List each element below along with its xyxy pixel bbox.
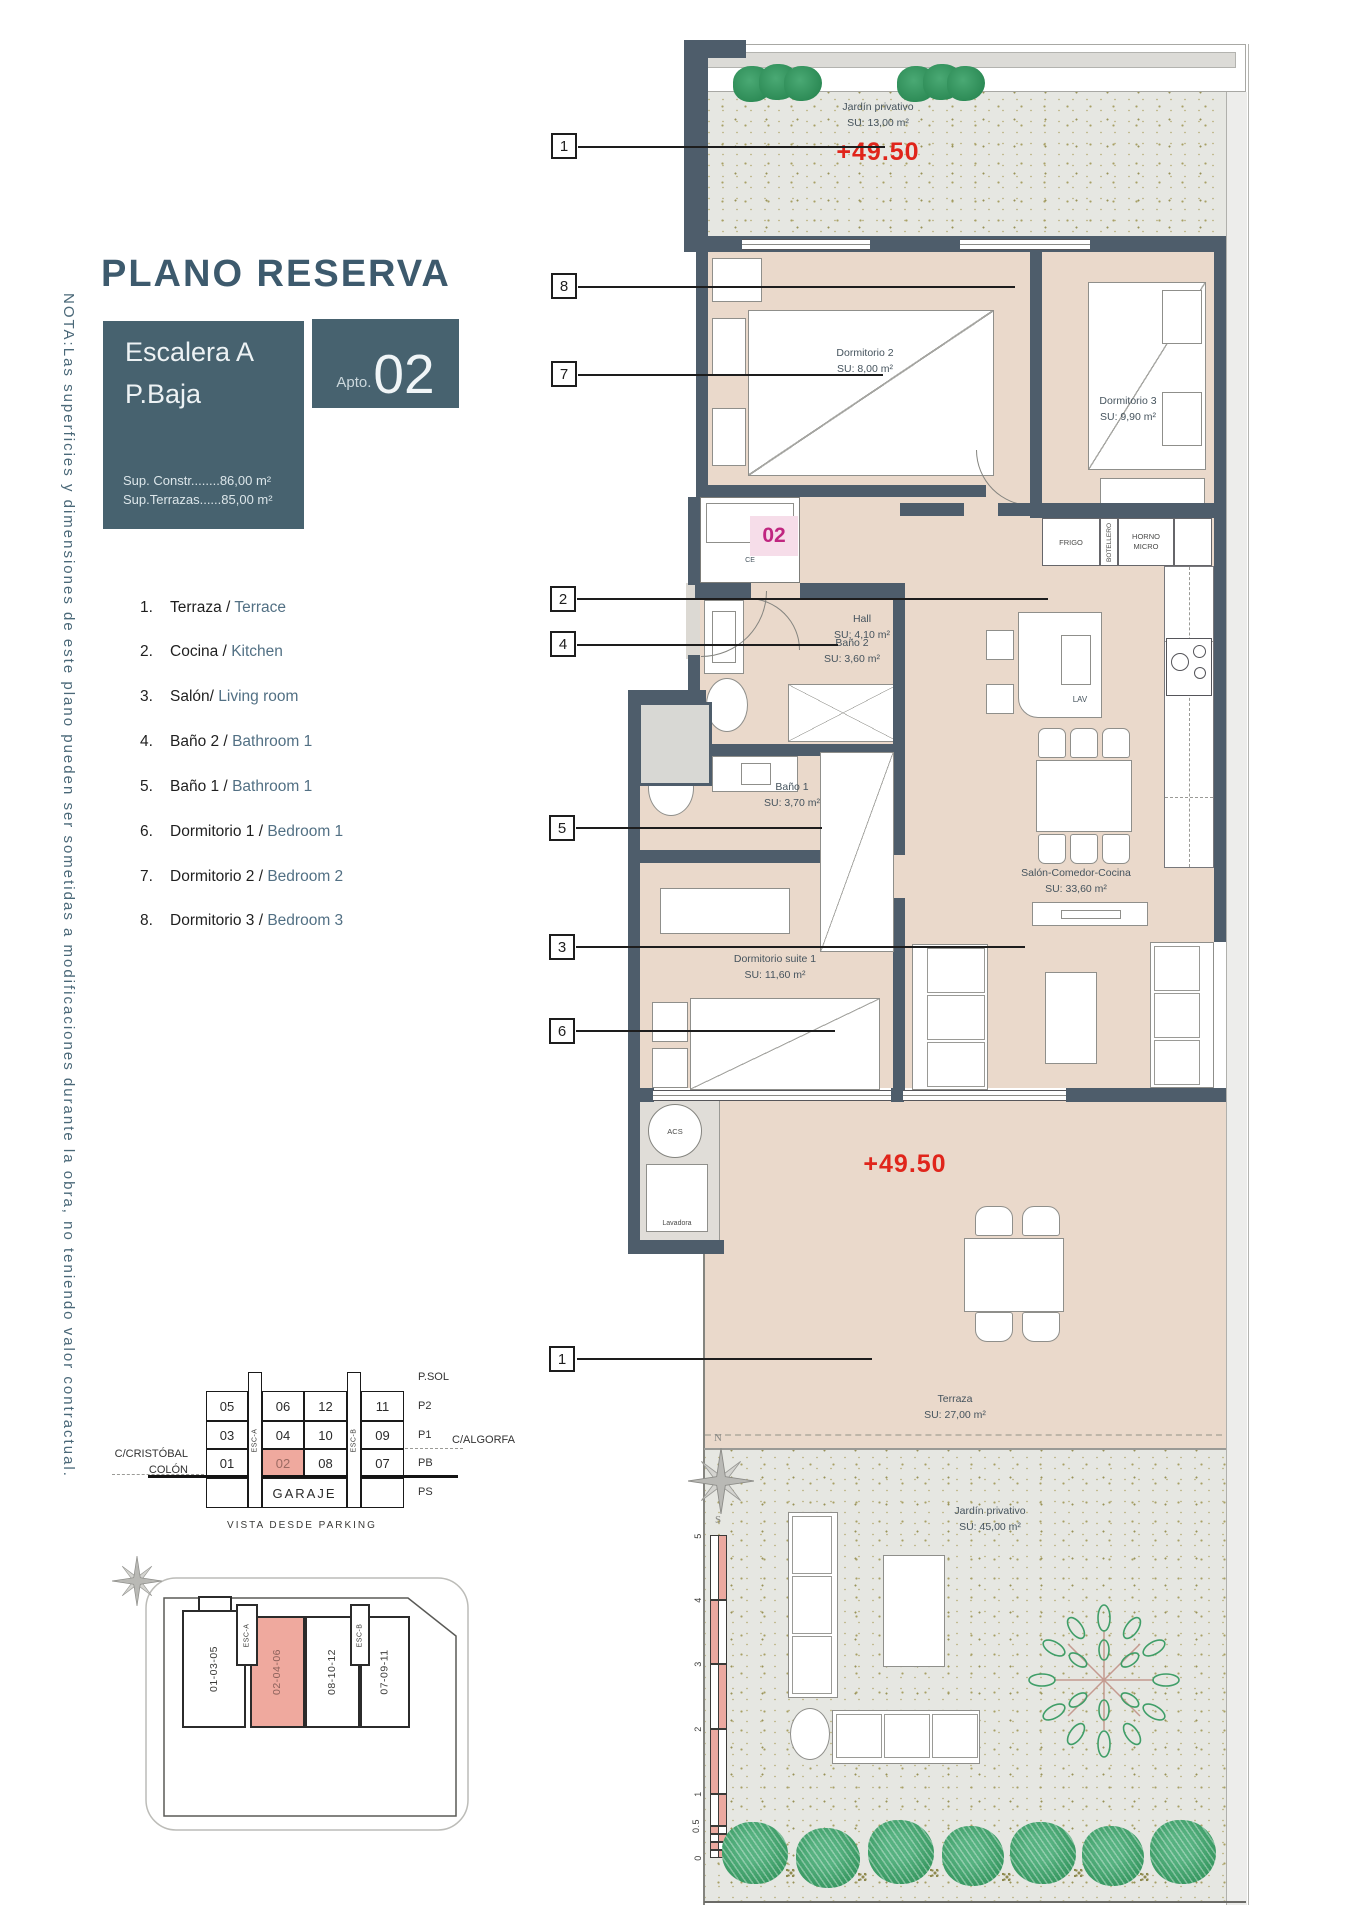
grid-esc-b: ESC-B [347, 1372, 361, 1508]
legend-en: Bathroom 1 [232, 778, 312, 795]
dorm3-name: Dormitorio 3 [1099, 394, 1156, 410]
legend-es: Cocina / [170, 643, 227, 660]
apto-number: 02 [373, 351, 434, 398]
scale-label-4: 4 [690, 1594, 706, 1606]
callout-2: 2 [550, 586, 576, 612]
hall-name: Hall [853, 612, 871, 628]
wall-hall-bano2-a [695, 583, 751, 598]
burner-icon [1194, 667, 1206, 679]
callout-1-bottom: 1 [549, 1346, 575, 1372]
site-block-jog [198, 1596, 232, 1612]
shaft-box [638, 702, 712, 786]
garden-bottom-name: Jardín privativo [954, 1504, 1025, 1520]
frigo-label: FRIGO [1059, 538, 1083, 547]
leader-1-bottom [577, 1358, 872, 1360]
grid-cell-garaje: GARAJE [262, 1478, 347, 1508]
burner-icon [1193, 645, 1206, 658]
wall-utility-left [628, 1095, 640, 1254]
scale-segment [718, 1664, 727, 1729]
level-label-p2: P2 [418, 1400, 431, 1412]
sup-terrazas: Sup.Terrazas......85,00 m² [123, 492, 273, 507]
legend-es: Dormitorio 2 / [170, 868, 263, 885]
bano2-name: Baño 2 [835, 636, 868, 652]
dining-table [1036, 760, 1132, 832]
sofa-cushion [1154, 993, 1200, 1038]
scale-segment [718, 1826, 727, 1834]
counter-dash [1189, 567, 1190, 867]
grid-cell-01: 01 [206, 1449, 248, 1478]
legend-num: 5. [140, 778, 170, 796]
callout-label: 8 [560, 278, 568, 295]
legend-num: 3. [140, 688, 170, 706]
sup-constr: Sup. Constr........86,00 m² [123, 473, 271, 488]
street-dash-left [112, 1474, 204, 1475]
legend-item-dorm3: 8.Dormitorio 3 / Bedroom 3 [140, 912, 343, 930]
legend-es: Terraza / [170, 599, 230, 616]
legend-item-dorm1: 6.Dormitorio 1 / Bedroom 1 [140, 823, 343, 841]
window-bottom-1 [653, 1090, 891, 1101]
acs-circle: ACS [648, 1104, 702, 1158]
lav-label: LAV [1073, 694, 1088, 706]
leader-8 [578, 286, 1015, 288]
tv-unit [1061, 910, 1121, 919]
leader-4 [577, 644, 838, 646]
bush-icon [1150, 1820, 1216, 1884]
callout-3: 3 [549, 934, 575, 960]
garden-top-name: Jardín privativo [842, 100, 913, 116]
legend-item-terraza: 1.Terraza / Terrace [140, 599, 286, 617]
coffee-table [1045, 972, 1097, 1064]
leader-6 [576, 1030, 835, 1032]
kitchen-cell-frigo: FRIGO [1042, 518, 1100, 566]
sofa-cushion [836, 1714, 882, 1758]
wall-hall-d3-a [900, 503, 964, 516]
callout-label: 3 [558, 939, 566, 956]
scale-label-0: 0 [690, 1852, 706, 1864]
cell-label: 10 [318, 1428, 332, 1443]
bed-pillow [712, 318, 746, 376]
callout-8: 8 [551, 273, 577, 299]
leader-3 [576, 946, 1025, 948]
legend-item-bano2: 4.Baño 2 / Bathroom 1 [140, 733, 312, 751]
wall-closet-left [688, 497, 700, 585]
dining-chair [1070, 728, 1098, 758]
wall-left-outer [628, 690, 640, 1095]
terrace-chair [1022, 1312, 1060, 1342]
bush-icon [722, 1822, 788, 1884]
legend-en: Terrace [234, 599, 286, 616]
bush-icon [1010, 1822, 1076, 1884]
flower-icon [858, 1872, 868, 1882]
bano1-name: Baño 1 [775, 780, 808, 796]
callout-5: 5 [549, 815, 575, 841]
level-label-ps: PS [418, 1486, 433, 1498]
legend-num: 4. [140, 733, 170, 751]
legend-en: Bathroom 1 [232, 733, 312, 750]
callout-label: 4 [559, 636, 567, 653]
grid-cell-08: 08 [304, 1449, 347, 1478]
legend-en: Bedroom 1 [267, 823, 343, 840]
legend-en: Kitchen [231, 643, 283, 660]
dining-chair [1038, 728, 1066, 758]
wardrobe [820, 752, 894, 952]
sofa-right [1150, 942, 1214, 1088]
legend-num: 2. [140, 643, 170, 661]
site-esc-b-label: ESC-B [357, 1623, 364, 1647]
burner-icon [1171, 653, 1189, 671]
closet-ce-label: CE [745, 556, 755, 567]
acs-label: ACS [667, 1127, 682, 1136]
wall-hall-d3-b [998, 503, 1032, 516]
island-sink [1061, 635, 1091, 685]
grid-cell-empty-right [361, 1478, 404, 1508]
wall-d3-bottom [1030, 503, 1226, 518]
legend-es: Dormitorio 1 / [170, 823, 263, 840]
scale-label-05: 0.5 [686, 1820, 706, 1832]
tree-icon [1022, 1598, 1187, 1763]
garden-top-area [708, 92, 1226, 236]
bush-icon [868, 1820, 934, 1884]
legend-en: Living room [218, 688, 298, 705]
level-label-p1: P1 [418, 1429, 431, 1441]
scale-segment [718, 1729, 727, 1794]
salon-area: SU: 33,60 m² [1045, 882, 1107, 898]
wall-suite-divider-a [893, 755, 905, 855]
kitchen-counter [1164, 566, 1214, 868]
bed-pillow [652, 1048, 688, 1088]
grid-cell-04: 04 [262, 1421, 304, 1449]
entrance-badge: 02 [750, 516, 798, 556]
entrance-badge-label: 02 [762, 524, 785, 548]
compass-s-label: S [715, 1514, 721, 1526]
legend-es: Salón/ [170, 688, 214, 705]
legend-item-salon: 3.Salón/ Living room [140, 688, 298, 706]
bar-stool [986, 630, 1014, 660]
wall-below-d2 [696, 485, 986, 497]
apto-prefix: Apto. [336, 374, 371, 391]
garden-sofa-horizontal [832, 1710, 980, 1764]
leader-2 [577, 598, 1048, 600]
garden-top-level: +49.50 [836, 138, 919, 167]
sofa-cushion [792, 1516, 832, 1574]
bano2-shower [788, 684, 898, 742]
cell-label: 05 [220, 1399, 234, 1414]
bano2-area: SU: 3,60 m² [824, 652, 880, 668]
cell-label: 01 [220, 1456, 234, 1471]
sofa-cushion [927, 1042, 985, 1087]
suite-area: SU: 11,60 m² [744, 968, 805, 984]
salon-name: Salón-Comedor-Cocina [1021, 866, 1131, 882]
dorm3-area: SU: 9,90 m² [1100, 410, 1156, 426]
site-esc-b: ESC-B [350, 1604, 370, 1666]
window-top-2 [960, 239, 1090, 250]
terrace-chair [975, 1206, 1013, 1236]
flower-icon [1074, 1868, 1084, 1878]
tv-bench [1032, 902, 1148, 926]
plan-outer-right-line [1248, 44, 1249, 1905]
horno-label: HORNO [1132, 532, 1160, 542]
scale-segment [718, 1600, 727, 1664]
legend-es: Dormitorio 3 / [170, 912, 263, 929]
garden-round-table [790, 1708, 830, 1760]
cell-label: 04 [276, 1428, 290, 1443]
cell-label: 06 [276, 1399, 290, 1414]
scale-label-3: 3 [690, 1658, 706, 1670]
callout-1-top: 1 [551, 133, 577, 159]
bano2-toilet [706, 678, 748, 732]
plan-right-strip [1226, 92, 1247, 1905]
level-label-pb: PB [418, 1457, 433, 1469]
grid-cell-11: 11 [361, 1391, 404, 1421]
flower-icon [1002, 1872, 1012, 1882]
terrace-table [964, 1238, 1064, 1312]
garden-transition-line [704, 1448, 1226, 1450]
suite-dresser [660, 888, 790, 934]
closet-dorm3 [1100, 478, 1205, 506]
grid-cell-10: 10 [304, 1421, 347, 1449]
bed-pillow [1162, 392, 1202, 446]
wall-suite-divider-b [893, 898, 905, 1090]
wall-hall-bano2-b [800, 583, 905, 598]
sofa-cushion [792, 1636, 832, 1694]
sofa-left [912, 944, 988, 1090]
callout-7: 7 [551, 361, 577, 387]
flower-icon [786, 1868, 796, 1878]
cell-label: 07 [375, 1456, 389, 1471]
sofa-cushion [1154, 946, 1200, 991]
terrace-dashed-line [705, 1434, 1222, 1436]
site-block-02-04-06: 02-04-06 [250, 1616, 305, 1728]
wall-bath-bottom [640, 850, 822, 863]
page-title: PLANO RESERVA [101, 253, 451, 296]
legend-item-bano1: 5.Baño 1 / Bathroom 1 [140, 778, 312, 796]
leader-1-top [578, 146, 885, 148]
ground-line [148, 1475, 458, 1478]
cell-label: 12 [318, 1399, 332, 1414]
site-esc-a: ESC-A [236, 1604, 258, 1666]
callout-6: 6 [549, 1018, 575, 1044]
scale-segment [718, 1794, 727, 1826]
wall-left-below-entrance [688, 655, 700, 695]
legend-num: 8. [140, 912, 170, 930]
level-label-psol: P.SOL [418, 1371, 449, 1383]
cooktop [1166, 638, 1212, 696]
window-top-1 [742, 239, 870, 250]
grid-cell-empty-left [206, 1478, 248, 1508]
callout-label: 1 [558, 1351, 566, 1368]
wall-utility-bottom [628, 1240, 724, 1254]
legend-item-dorm2: 7.Dormitorio 2 / Bedroom 2 [140, 868, 343, 886]
street-left-line1: C/CRISTÓBAL [100, 1448, 188, 1460]
lavadora-box: Lavadora [646, 1164, 708, 1232]
cell-label: 09 [375, 1428, 389, 1443]
bano1-sink-basin [741, 763, 771, 785]
bed-pillow [1162, 290, 1202, 344]
grid-esc-a: ESC-A [248, 1372, 262, 1508]
bush-icon [942, 1826, 1004, 1886]
escalera-box: Escalera A P.Baja Sup. Constr........86,… [103, 321, 304, 529]
bed-pillow [712, 408, 746, 466]
terrace-chair [975, 1312, 1013, 1342]
scale-label-5: 5 [690, 1530, 706, 1542]
garden-bottom-area-label: SU: 45,00 m² [959, 1520, 1021, 1536]
site-block-label: 08-10-12 [327, 1649, 339, 1695]
bano1-area: SU: 3,70 m² [764, 796, 820, 812]
grid-cell-06: 06 [262, 1391, 304, 1421]
suite-name: Dormitorio suite 1 [734, 952, 816, 968]
diagram-caption: VISTA DESDE PARKING [192, 1520, 412, 1531]
flower-icon [930, 1868, 940, 1878]
bed-suite [690, 998, 880, 1090]
kitchen-island [1018, 612, 1102, 718]
wall-bano2-right [893, 598, 905, 755]
legend-es: Baño 1 / [170, 778, 228, 795]
street-right-label: C/ALGORFA [452, 1434, 515, 1446]
legend-item-cocina: 2.Cocina / Kitchen [140, 643, 283, 661]
sofa-cushion [792, 1576, 832, 1634]
garden-bottom-edge [704, 1901, 1246, 1903]
dorm2-name: Dormitorio 2 [836, 346, 893, 362]
sofa-cushion [927, 995, 985, 1040]
terrace-chair [1022, 1206, 1060, 1236]
scale-label-1: 1 [690, 1788, 706, 1800]
sofa-cushion [1154, 1040, 1200, 1085]
compass-icon [688, 1448, 754, 1514]
site-esc-a-label: ESC-A [244, 1623, 251, 1647]
site-compass-icon [112, 1556, 162, 1606]
legend-num: 1. [140, 599, 170, 617]
bar-stool [986, 684, 1014, 714]
apto-box: Apto. 02 [312, 319, 459, 408]
callout-label: 6 [558, 1023, 566, 1040]
esc-b-label: ESC-B [351, 1428, 358, 1452]
bed-dorm2 [748, 310, 994, 476]
grid-cell-07: 07 [361, 1449, 404, 1478]
garden-top-area-label: SU: 13,00 m² [847, 116, 909, 132]
garaje-label: GARAJE [272, 1486, 336, 1501]
grid-cell-02-highlighted: 02 [262, 1449, 304, 1478]
nota-vertical-text: NOTA:Las superficies y dimensiones de es… [60, 293, 77, 1623]
nightstand [712, 258, 762, 302]
cell-label: 02 [276, 1456, 290, 1471]
cell-label: 03 [220, 1428, 234, 1443]
escalera-label: Escalera A [125, 337, 254, 368]
wall-bottom-right [1066, 1088, 1226, 1102]
dining-chair [1102, 834, 1130, 864]
terrace-name: Terraza [937, 1392, 972, 1408]
garden-lounger [883, 1555, 945, 1667]
grid-cell-05: 05 [206, 1391, 248, 1421]
legend-num: 7. [140, 868, 170, 886]
flower-icon [1140, 1872, 1150, 1882]
micro-label: MICRO [1134, 542, 1159, 552]
site-block-label: 02-04-06 [272, 1649, 284, 1695]
scale-label-2: 2 [690, 1723, 706, 1735]
kitchen-cell-extra [1174, 518, 1212, 566]
callout-4: 4 [550, 631, 576, 657]
site-block-label: 01-03-05 [208, 1646, 220, 1692]
sofa-cushion [927, 948, 985, 993]
cell-label: 08 [318, 1456, 332, 1471]
kitchen-cell-botellero: BOTELLERO [1100, 518, 1118, 566]
grid-cell-09: 09 [361, 1421, 404, 1449]
street-dash-right [405, 1448, 463, 1449]
botellero-label: BOTELLERO [1106, 522, 1113, 561]
terrace-level: +49.50 [863, 1150, 946, 1179]
garden-sofa-vertical [788, 1512, 838, 1698]
callout-label: 1 [560, 138, 568, 155]
callout-label: 2 [559, 591, 567, 608]
leader-5 [576, 827, 822, 829]
compass-n-label: N [714, 1432, 722, 1444]
bush-icon [796, 1828, 860, 1888]
esc-a-label: ESC-A [252, 1428, 259, 1452]
terrace-left-line [703, 1254, 705, 1905]
bush-icon [1082, 1826, 1144, 1886]
lavadora-label: Lavadora [662, 1220, 691, 1227]
legend-en: Bedroom 3 [267, 912, 343, 929]
callout-label: 7 [560, 366, 568, 383]
dining-chair [1038, 834, 1066, 864]
sofa-cushion [884, 1714, 930, 1758]
scale-segment [718, 1535, 727, 1600]
dining-chair [1070, 834, 1098, 864]
terrace-area-label: SU: 27,00 m² [924, 1408, 986, 1424]
kitchen-cell-horno: HORNO MICRO [1118, 518, 1174, 566]
grid-cell-12: 12 [304, 1391, 347, 1421]
wall-right [1214, 252, 1226, 942]
legend-en: Bedroom 2 [267, 868, 343, 885]
bed-pillow [652, 1002, 688, 1042]
callout-label: 5 [558, 820, 566, 837]
counter-dash [1165, 797, 1213, 798]
legend-es: Baño 2 / [170, 733, 228, 750]
dining-chair [1102, 728, 1130, 758]
planta-label: P.Baja [125, 379, 201, 410]
legend-num: 6. [140, 823, 170, 841]
window-bottom-2 [903, 1090, 1066, 1101]
leader-7 [578, 374, 883, 376]
sofa-cushion [932, 1714, 978, 1758]
cell-label: 11 [376, 1399, 390, 1414]
site-block-label: 07-09-11 [379, 1649, 391, 1694]
grid-cell-03: 03 [206, 1421, 248, 1449]
wall-divider-d2-d3 [1030, 252, 1042, 460]
wall-kitchen-stub [1030, 445, 1042, 505]
